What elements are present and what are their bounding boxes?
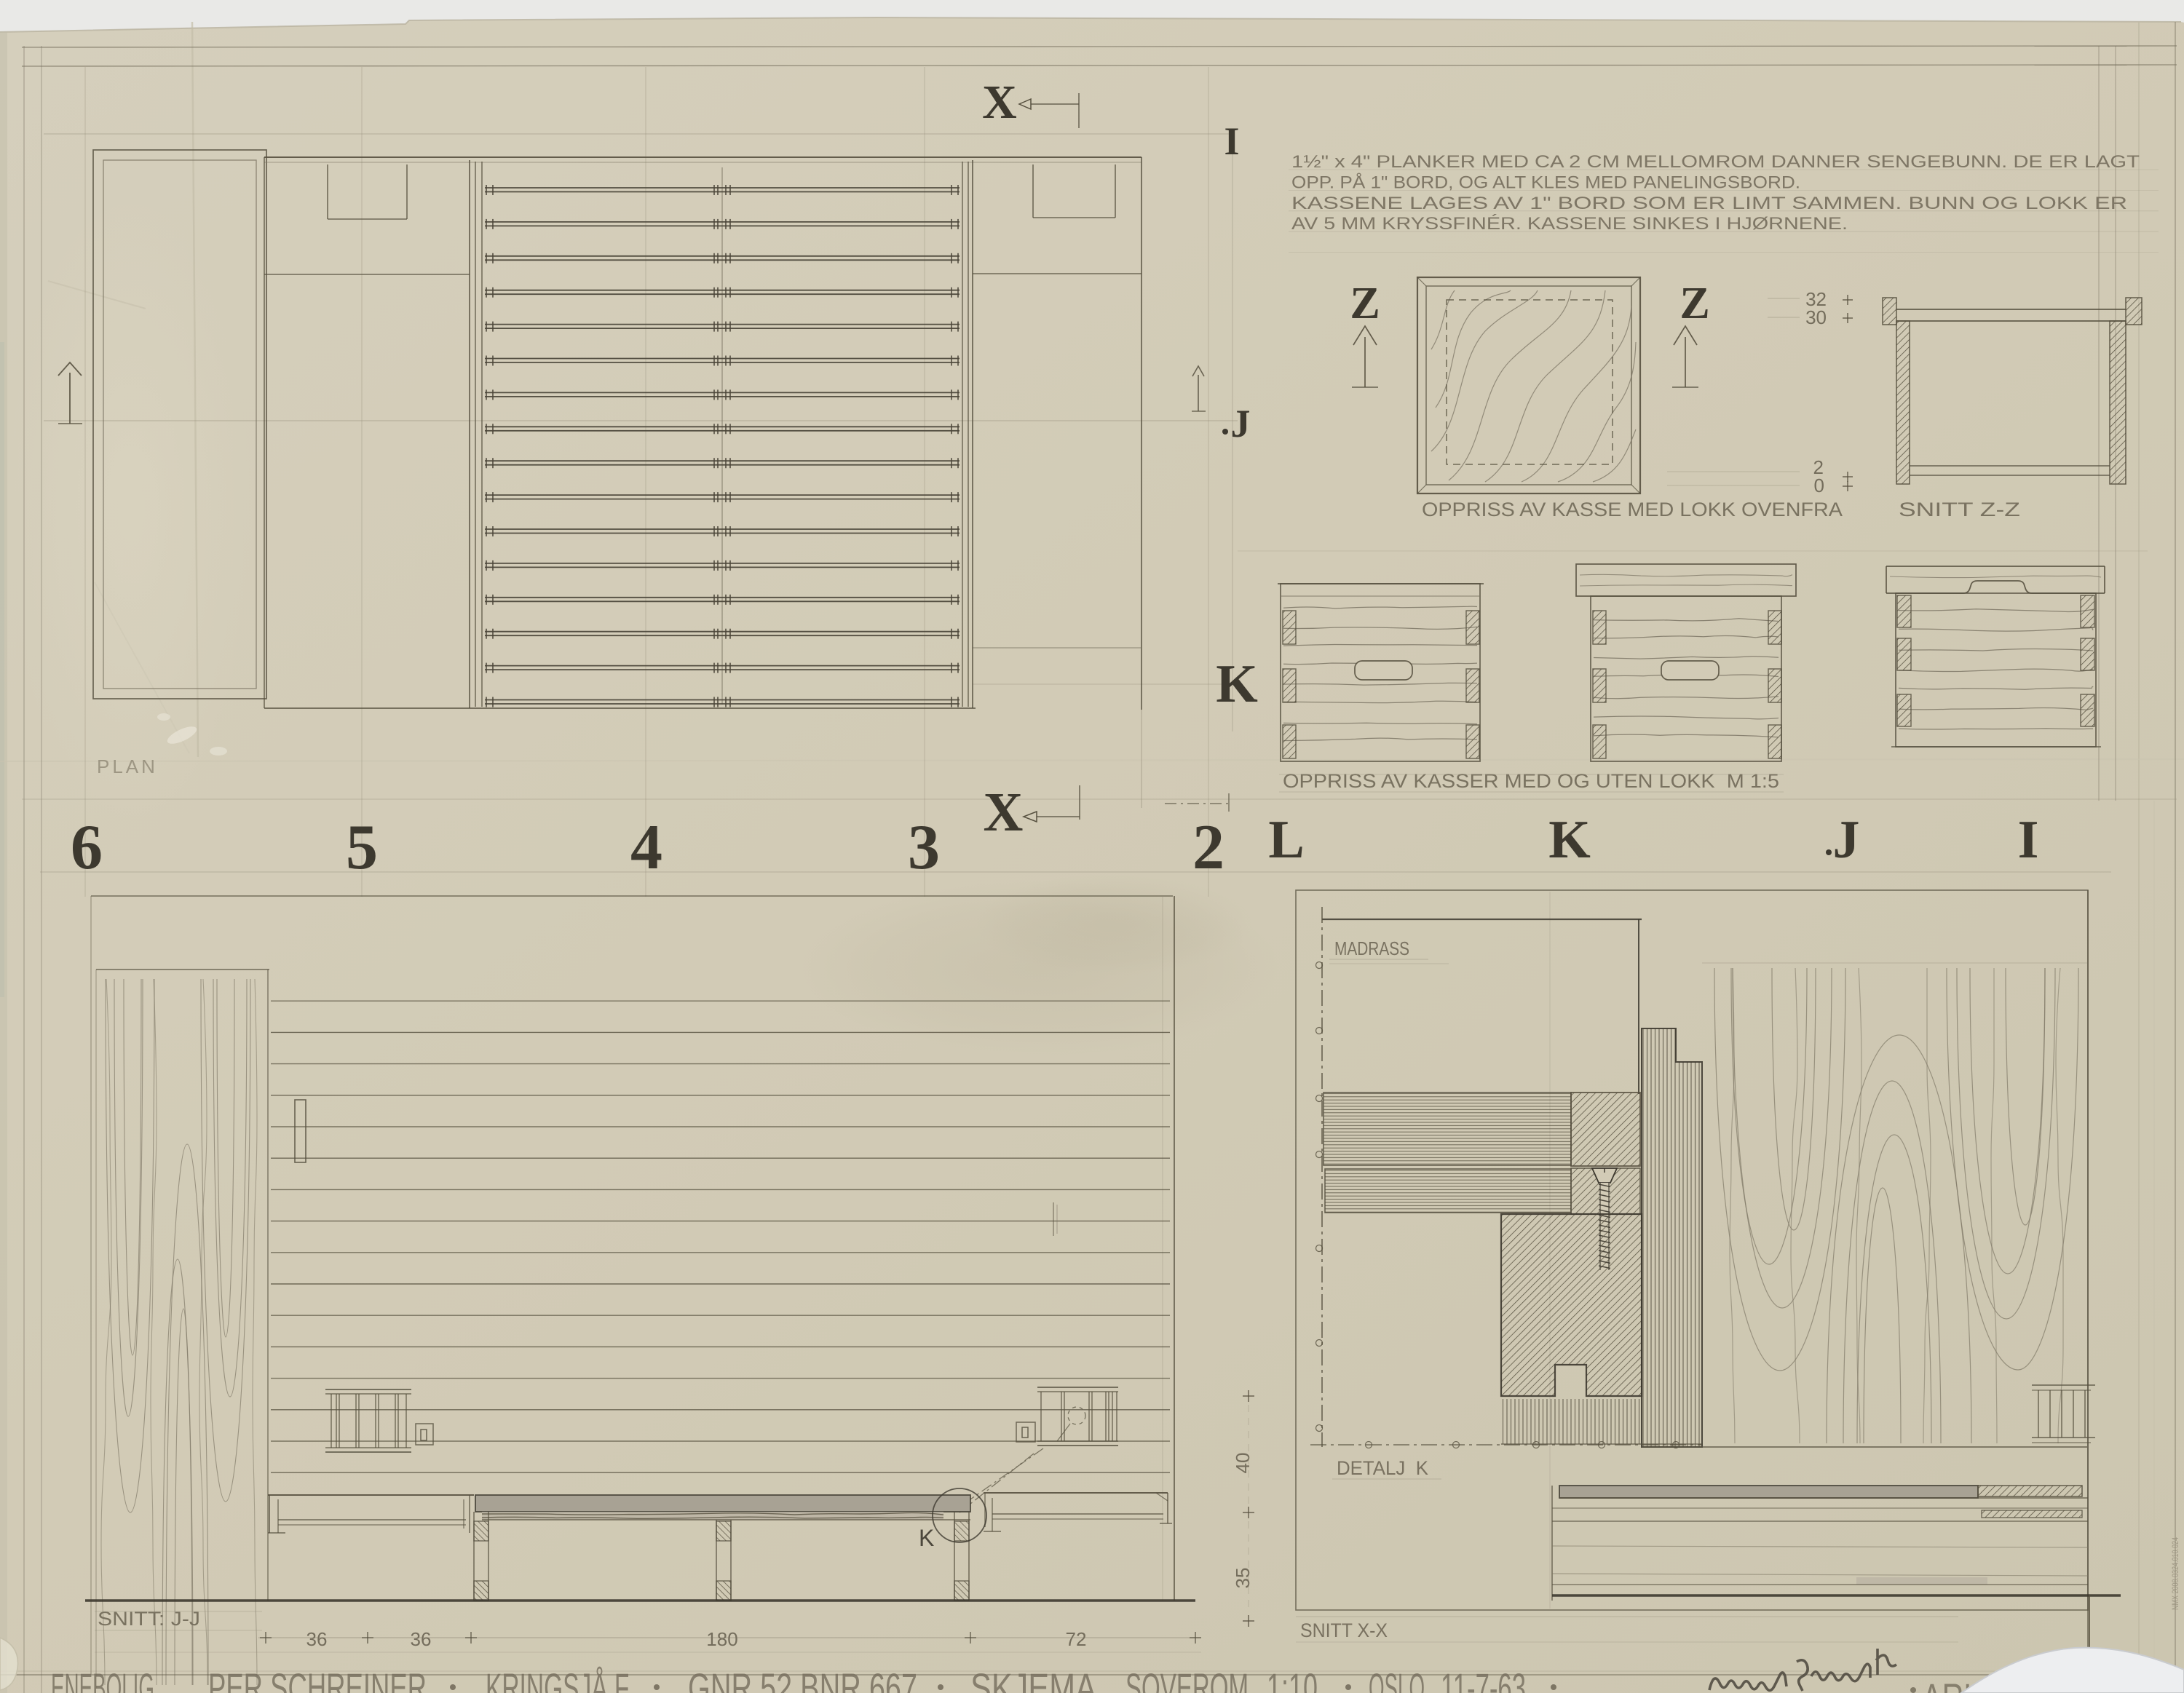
svg-text:KASSENE LAGES AV 1" BORD SOM E: KASSENE LAGES AV 1" BORD SOM ER LIMT SAM… bbox=[1291, 194, 2127, 213]
svg-text:J: J bbox=[1231, 402, 1251, 445]
svg-text:3: 3 bbox=[908, 812, 940, 883]
svg-text:6: 6 bbox=[71, 812, 103, 883]
svg-text:K: K bbox=[919, 1525, 934, 1551]
svg-text:NMX 2008.0324.010.024: NMX 2008.0324.010.024 bbox=[2170, 1537, 2180, 1610]
svg-text:30: 30 bbox=[1805, 306, 1827, 328]
svg-text:180: 180 bbox=[706, 1628, 737, 1650]
svg-text:36: 36 bbox=[306, 1628, 328, 1650]
svg-text:PLAN: PLAN bbox=[97, 756, 158, 777]
svg-text:OPP. PÅ 1" BORD, OG ALT KLES M: OPP. PÅ 1" BORD, OG ALT KLES MED PANELIN… bbox=[1291, 172, 1800, 192]
svg-text:OPPRISS AV KASSE MED LOKK OVEN: OPPRISS AV KASSE MED LOKK OVENFRA bbox=[1422, 499, 1843, 520]
svg-text:0: 0 bbox=[1814, 475, 1824, 496]
svg-text:AV 5 MM KRYSSFINÉR. KASSENE SI: AV 5 MM KRYSSFINÉR. KASSENE SINKES I HJØ… bbox=[1291, 214, 1848, 234]
svg-text:1½" x 4" PLANKER MED CA 2 CM M: 1½" x 4" PLANKER MED CA 2 CM MELLOMROM D… bbox=[1291, 152, 2140, 172]
svg-text:K: K bbox=[1216, 654, 1258, 714]
svg-text:I: I bbox=[1224, 119, 1239, 163]
svg-text:DETALJ K: DETALJ K bbox=[1337, 1457, 1428, 1479]
svg-text:KRINGSJÅ F.: KRINGSJÅ F. bbox=[486, 1665, 633, 1693]
svg-text:72: 72 bbox=[1066, 1628, 1087, 1650]
svg-text:J: J bbox=[1833, 810, 1860, 870]
svg-text:SNITT X-X: SNITT X-X bbox=[1300, 1619, 1388, 1641]
svg-text:OPPRISS AV KASSER MED OG UTEN: OPPRISS AV KASSER MED OG UTEN LOKK M 1:5 bbox=[1283, 770, 1779, 792]
svg-text:40: 40 bbox=[1232, 1453, 1254, 1474]
svg-text:I: I bbox=[2018, 810, 2039, 870]
svg-text:SNITT Z-Z: SNITT Z-Z bbox=[1899, 499, 2020, 520]
svg-text:4: 4 bbox=[630, 812, 662, 883]
svg-text:X: X bbox=[982, 76, 1017, 129]
svg-text:5: 5 bbox=[346, 812, 378, 883]
svg-text:11-7-63: 11-7-63 bbox=[1441, 1665, 1526, 1693]
svg-text:GNR 52 BNR 667: GNR 52 BNR 667 bbox=[688, 1665, 917, 1693]
svg-text:K: K bbox=[1548, 810, 1591, 870]
svg-text:X: X bbox=[984, 782, 1024, 843]
svg-text:MADRASS: MADRASS bbox=[1334, 937, 1409, 959]
svg-text:SOVEROM: SOVEROM bbox=[1125, 1665, 1249, 1693]
svg-text:36: 36 bbox=[411, 1628, 432, 1650]
svg-text:35: 35 bbox=[1232, 1568, 1254, 1589]
svg-text:ENEBOLIG: ENEBOLIG bbox=[51, 1665, 154, 1693]
svg-text:SKJEMA: SKJEMA bbox=[970, 1665, 1096, 1693]
svg-text:OSLO: OSLO bbox=[1369, 1665, 1425, 1693]
svg-text:PER SCHREINER: PER SCHREINER bbox=[208, 1665, 427, 1693]
svg-text:1:10: 1:10 bbox=[1267, 1665, 1318, 1693]
svg-text:Z: Z bbox=[1350, 279, 1380, 328]
svg-text:Z: Z bbox=[1679, 279, 1709, 328]
svg-text:L: L bbox=[1268, 810, 1304, 870]
svg-text:SNITT: J-J: SNITT: J-J bbox=[98, 1608, 200, 1630]
svg-text:2: 2 bbox=[1192, 812, 1224, 883]
